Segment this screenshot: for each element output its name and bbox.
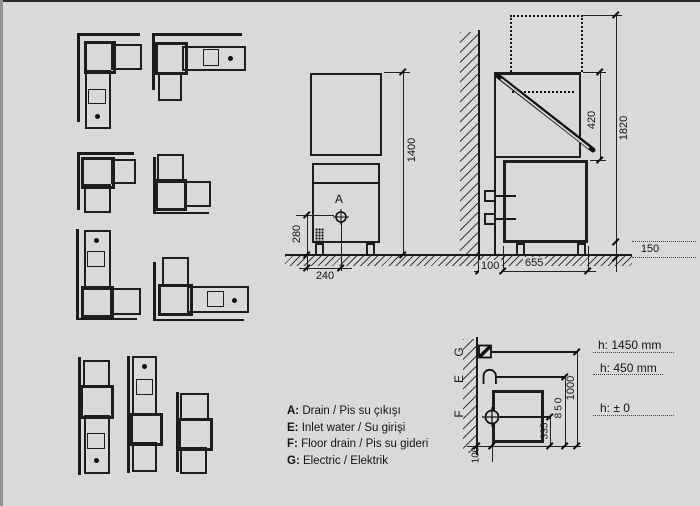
connection-line — [496, 218, 516, 220]
sink — [136, 379, 153, 395]
height-note-underline — [593, 352, 674, 353]
dim-text-total-depth: 1000 — [565, 376, 577, 400]
counter-unit — [83, 360, 110, 387]
counter-unit — [111, 44, 142, 70]
left-edge-strip — [0, 0, 3, 506]
connection-box — [484, 213, 496, 225]
sink — [87, 251, 105, 267]
plan-layout-9 — [176, 391, 209, 473]
hood-front — [310, 73, 382, 156]
connection-box — [484, 190, 496, 202]
counter-unit — [180, 447, 207, 474]
wall-line — [77, 33, 80, 122]
counter-unit — [84, 184, 111, 213]
extension-line — [384, 72, 410, 73]
leg — [315, 243, 324, 256]
dim-line-280 — [307, 215, 308, 271]
legend-text: Floor drain / Pis su gideri — [301, 438, 428, 450]
drain-connection-dots — [315, 228, 324, 243]
electric-level-line — [491, 351, 577, 353]
counter-unit — [180, 393, 209, 421]
wall-hatch — [460, 32, 478, 254]
plan-layout-4 — [153, 154, 210, 215]
drain-dot — [95, 114, 100, 119]
dim-text-drain-distance: 335 — [540, 423, 551, 440]
leg — [366, 243, 375, 256]
electric-symbol-icon — [479, 346, 491, 358]
wall-line — [153, 262, 156, 319]
drain-dot — [232, 298, 237, 303]
installation-drawing: A 280 240 1400 420 1820 150 100 655 — [0, 0, 700, 506]
hood-raised-outline — [510, 15, 583, 72]
legend: A: Drain / Pis su çıkışı E: Inlet water … — [287, 403, 428, 469]
machine-unit — [80, 385, 114, 419]
counter-unit — [184, 181, 211, 207]
legend-item: G: Electric / Elektrik — [287, 453, 428, 470]
height-note-underline — [593, 415, 674, 416]
sink — [203, 49, 219, 66]
label-inlet-water: E — [452, 375, 466, 383]
plan-layout-2 — [152, 33, 244, 99]
counter-unit — [158, 72, 182, 101]
legend-key: G: — [287, 455, 300, 467]
drain-dot — [228, 56, 233, 61]
dim-line-1820 — [616, 15, 617, 272]
dim-line-1400 — [403, 72, 404, 256]
wall-line — [77, 152, 134, 155]
wall-line — [153, 212, 209, 215]
wall-line — [77, 152, 80, 210]
drain-dot — [142, 364, 147, 369]
counter-unit — [111, 159, 136, 184]
dim-text-plan-wall-clearance: 100 — [471, 447, 482, 464]
dim-text-drain-offset: 240 — [310, 270, 340, 282]
counter-unit — [110, 288, 141, 315]
dim-line-1000 — [577, 352, 578, 447]
wall-line — [152, 33, 242, 36]
leg — [577, 243, 586, 256]
cabinet-panel-line — [314, 182, 378, 184]
dim-text-hood-opening: 420 — [586, 111, 598, 129]
height-note-underline — [593, 374, 663, 375]
dim-line-420 — [600, 72, 601, 161]
dim-text-base-height: 150 — [637, 243, 663, 255]
height-note-0: h: ± 0 — [600, 401, 630, 415]
inlet-level-line — [495, 376, 565, 378]
wall-line — [77, 33, 140, 36]
counter-unit — [162, 257, 189, 287]
level-dotted-line — [632, 257, 696, 258]
machine-unit — [155, 179, 187, 211]
dim-text-depth: 655 — [523, 257, 545, 269]
wall-line — [478, 30, 480, 272]
dim-text-drain-height: 280 — [291, 225, 303, 243]
drain-dot — [94, 458, 99, 463]
level-dotted-line — [632, 241, 696, 242]
plan-layout-1 — [77, 33, 142, 128]
drain-point-label: A — [335, 192, 343, 206]
plan-layout-3 — [77, 152, 135, 212]
label-floor-drain: F — [452, 410, 466, 417]
plan-layout-7 — [78, 355, 110, 475]
sink — [88, 89, 106, 104]
wall-line — [153, 319, 244, 322]
plan-layout-6 — [153, 255, 246, 321]
legend-item: F: Floor drain / Pis su gideri — [287, 436, 428, 453]
dim-text-inlet-distance: 850 — [554, 396, 565, 419]
hood-side — [494, 72, 581, 158]
dim-text-wall-clearance: 100 — [479, 260, 501, 272]
label-electric: G — [452, 347, 466, 356]
drain-level-line — [500, 416, 550, 418]
extension-line — [296, 215, 334, 216]
ground-hatch — [285, 256, 632, 266]
plan-layout-5 — [76, 229, 138, 321]
sink — [207, 291, 224, 307]
height-note-1450: h: 1450 mm — [598, 338, 661, 352]
back-panel-line — [494, 155, 496, 255]
legend-key: E: — [287, 422, 299, 434]
legend-text: Electric / Elektrik — [303, 455, 388, 467]
legend-key: F: — [287, 438, 298, 450]
height-note-450: h: 450 mm — [600, 361, 657, 375]
legend-item: E: Inlet water / Su girişi — [287, 420, 428, 437]
plan-layout-8 — [127, 354, 159, 474]
dim-text-total-height-open: 1820 — [618, 116, 630, 140]
leg — [516, 243, 525, 256]
legend-item: A: Drain / Pis su çıkışı — [287, 403, 428, 420]
top-edge-line — [0, 0, 700, 2]
wall-line — [476, 337, 478, 455]
cabinet-side — [503, 160, 588, 243]
legend-key: A: — [287, 405, 299, 417]
sink — [87, 433, 105, 449]
connection-line — [496, 195, 516, 197]
legend-text: Inlet water / Su girişi — [302, 422, 406, 434]
dim-text-total-height: 1400 — [406, 138, 418, 162]
drain-dot — [94, 238, 99, 243]
extension-line — [583, 72, 606, 73]
hood-inner-dotted-line — [512, 91, 574, 93]
legend-text: Drain / Pis su çıkışı — [302, 405, 400, 417]
wall-line — [76, 229, 79, 318]
counter-unit — [132, 442, 157, 472]
